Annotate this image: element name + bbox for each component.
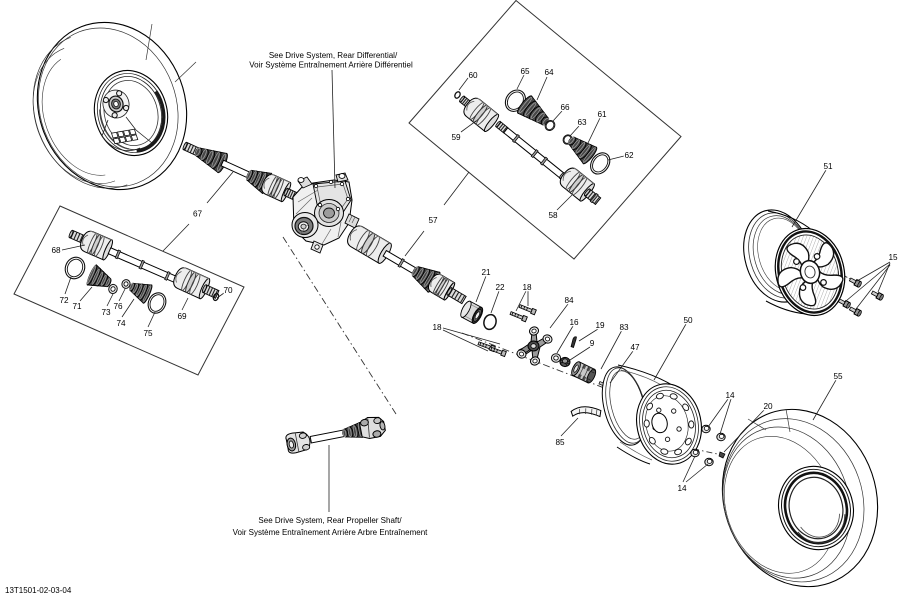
svg-text:20: 20: [763, 402, 773, 411]
svg-text:64: 64: [544, 68, 554, 77]
svg-text:83: 83: [619, 323, 629, 332]
svg-text:15: 15: [888, 253, 898, 262]
svg-text:59: 59: [451, 133, 461, 142]
svg-text:85: 85: [555, 438, 565, 447]
svg-text:75: 75: [143, 329, 153, 338]
svg-text:84: 84: [564, 296, 574, 305]
svg-text:71: 71: [72, 302, 82, 311]
svg-text:13T1501-02-03-04: 13T1501-02-03-04: [5, 586, 72, 595]
svg-text:74: 74: [116, 319, 126, 328]
svg-text:76: 76: [113, 302, 123, 311]
svg-text:50: 50: [683, 316, 693, 325]
svg-text:60: 60: [468, 71, 478, 80]
svg-text:67: 67: [193, 210, 203, 219]
svg-text:18: 18: [432, 323, 442, 332]
svg-text:66: 66: [560, 103, 570, 112]
svg-text:65: 65: [520, 67, 530, 76]
svg-text:21: 21: [481, 268, 491, 277]
svg-text:19: 19: [595, 321, 605, 330]
svg-text:47: 47: [630, 343, 640, 352]
svg-text:62: 62: [624, 151, 634, 160]
svg-text:70: 70: [223, 286, 233, 295]
svg-text:22: 22: [495, 283, 505, 292]
svg-text:See Drive System, Rear Propell: See Drive System, Rear Propeller Shaft/: [258, 516, 402, 525]
svg-text:63: 63: [577, 118, 587, 127]
svg-text:68: 68: [51, 246, 61, 255]
svg-text:72: 72: [59, 296, 69, 305]
svg-text:58: 58: [548, 211, 558, 220]
svg-text:55: 55: [833, 372, 843, 381]
svg-text:14: 14: [725, 391, 735, 400]
svg-text:57: 57: [428, 216, 438, 225]
svg-text:51: 51: [823, 162, 833, 171]
svg-text:Voir Système Entraînement Arri: Voir Système Entraînement Arrière Différ…: [249, 61, 413, 70]
svg-text:9: 9: [590, 339, 595, 348]
svg-text:16: 16: [569, 318, 579, 327]
svg-text:Voir Système Entraînement Arri: Voir Système Entraînement Arrière Arbre …: [233, 528, 429, 537]
svg-text:61: 61: [597, 110, 607, 119]
svg-text:18: 18: [522, 283, 532, 292]
svg-text:69: 69: [177, 312, 187, 321]
svg-text:14: 14: [677, 484, 687, 493]
svg-text:73: 73: [101, 308, 111, 317]
svg-text:See Drive System, Rear Differe: See Drive System, Rear Differential/: [269, 51, 398, 60]
